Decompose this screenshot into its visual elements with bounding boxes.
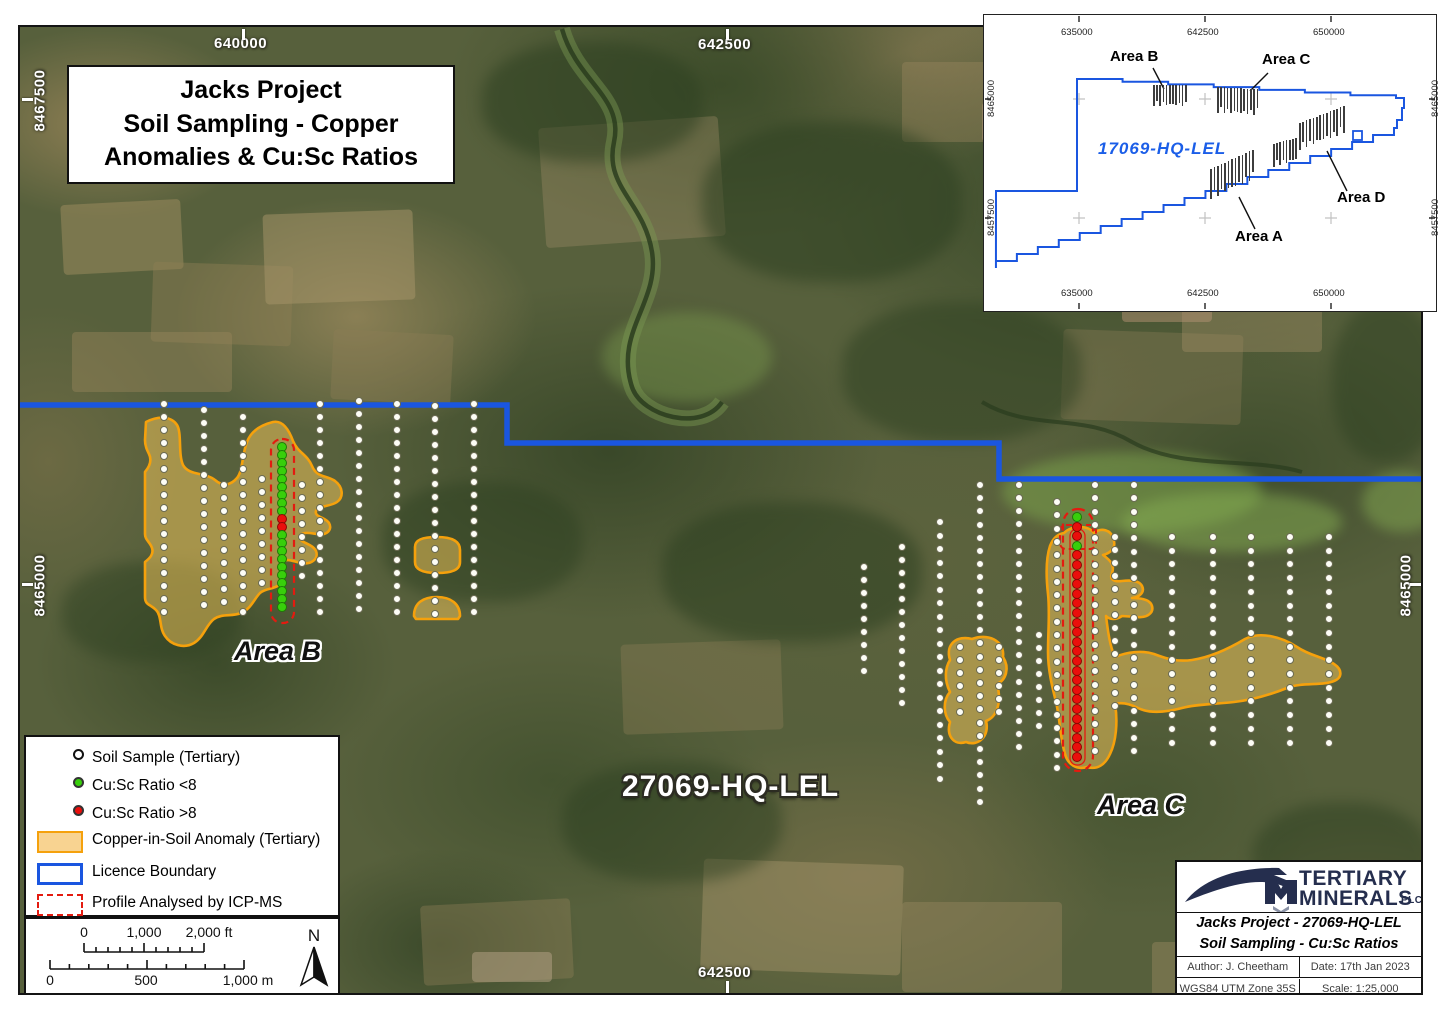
- legend-item-profile: Profile Analysed by ICP-MS: [26, 892, 338, 916]
- legend-label: Licence Boundary: [92, 863, 216, 881]
- inset-grid-650000-bottom: 650000: [1313, 288, 1345, 299]
- tertiary-minerals-logo-icon: [1177, 862, 1307, 912]
- inset-exclusion-square: [1353, 131, 1362, 140]
- scale-ft-0: 0: [80, 924, 88, 940]
- licence-boundary-swatch: [37, 863, 83, 885]
- inset-licence-number-label: 17069-HQ-LEL: [1098, 139, 1226, 159]
- logo-text-tertiary: TERTIARY: [1299, 868, 1407, 889]
- legend-box: Soil Sample (Tertiary) Cu:Sc Ratio <8 Cu…: [24, 735, 340, 917]
- inset-grid-635000-bottom: 635000: [1061, 288, 1093, 299]
- title-block-project-title: Jacks Project - 27069-HQ-LEL Soil Sampli…: [1177, 912, 1421, 957]
- project-title-line2: Soil Sampling - Cu:Sc Ratios: [1177, 934, 1421, 955]
- legend-label: Soil Sample (Tertiary): [92, 749, 240, 767]
- inset-area-d-label: Area D: [1337, 189, 1385, 206]
- inset-grid-8457500-right: 8457500: [1430, 199, 1440, 236]
- north-arrow-box: N: [292, 917, 340, 995]
- profile-swatch: [37, 894, 83, 916]
- scale-ft-1000: 1,000: [126, 924, 161, 940]
- legend-label: Cu:Sc Ratio <8: [92, 777, 197, 795]
- scale-bar-box: 0 1,000 2,000 ft 0 500 1,000 m: [24, 917, 294, 995]
- cusc-gt8-symbol: [73, 805, 84, 816]
- datum-cell: WGS84 UTM Zone 35S: [1177, 979, 1300, 996]
- logo-text-minerals: MINERALS: [1299, 888, 1413, 909]
- inset-area-a-label: Area A: [1235, 228, 1283, 245]
- legend-item-anomaly: Copper-in-Soil Anomaly (Tertiary): [26, 829, 338, 853]
- scale-m-1000: 1,000 m: [223, 972, 274, 988]
- legend-label: Cu:Sc Ratio >8: [92, 805, 197, 823]
- inset-grid-642500-bottom: 642500: [1187, 288, 1219, 299]
- north-label: N: [308, 926, 320, 945]
- legend-item-licence-boundary: Licence Boundary: [26, 861, 338, 885]
- author-cell: Author: J. Cheetham: [1177, 956, 1300, 977]
- inset-overview-map: 635000 642500 650000 635000 642500 65000…: [983, 14, 1437, 312]
- inset-grid-642500-top: 642500: [1187, 27, 1219, 38]
- scale-bars: 0 1,000 2,000 ft 0 500 1,000 m: [26, 919, 292, 993]
- tertiary-minerals-logo: TERTIARY MINERALS PLC: [1177, 862, 1421, 913]
- logo-text-plc: PLC: [1401, 896, 1423, 906]
- inset-grid-635000-top: 635000: [1061, 27, 1093, 38]
- inset-licence-polygon: [996, 79, 1404, 268]
- scale-m-0: 0: [46, 972, 54, 988]
- date-cell: Date: 17th Jan 2023: [1300, 956, 1422, 977]
- inset-grid-8465000-left: 8465000: [986, 80, 997, 117]
- legend-label: Profile Analysed by ICP-MS: [92, 894, 282, 912]
- inset-grid-650000-top: 650000: [1313, 27, 1345, 38]
- scale-m-500: 500: [134, 972, 158, 988]
- legend-label: Copper-in-Soil Anomaly (Tertiary): [92, 831, 320, 849]
- cusc-lt8-symbol: [73, 777, 84, 788]
- inset-edge-ticks: [985, 16, 1435, 309]
- legend-item-soil-sample: Soil Sample (Tertiary): [26, 747, 338, 771]
- inset-area-c-label: Area C: [1262, 51, 1310, 68]
- inset-grid-8457500-left: 8457500: [986, 199, 997, 236]
- inset-grid-8465000-right: 8465000: [1430, 80, 1440, 117]
- legend-item-cusc-lt8: Cu:Sc Ratio <8: [26, 775, 338, 799]
- inset-svg: [984, 15, 1435, 310]
- inset-area-b-label: Area B: [1110, 48, 1158, 65]
- anomaly-swatch: [37, 831, 83, 853]
- north-arrow-icon: N: [292, 919, 336, 993]
- scale-ft-2000: 2,000 ft: [186, 924, 233, 940]
- project-title-line1: Jacks Project - 27069-HQ-LEL: [1177, 913, 1421, 934]
- scale-cell: Scale: 1:25,000: [1300, 979, 1422, 996]
- map-title-block: TERTIARY MINERALS PLC Jacks Project - 27…: [1175, 860, 1423, 995]
- soil-sample-symbol: [73, 749, 84, 760]
- legend-item-cusc-gt8: Cu:Sc Ratio >8: [26, 803, 338, 827]
